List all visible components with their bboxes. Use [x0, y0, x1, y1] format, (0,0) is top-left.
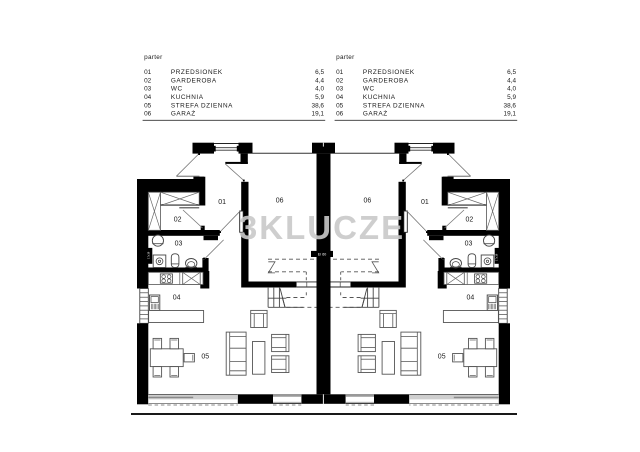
svg-text:38,6: 38,6: [312, 102, 325, 109]
svg-text:03: 03: [336, 86, 344, 93]
svg-text:19,1: 19,1: [504, 111, 517, 118]
svg-text:WC: WC: [171, 86, 183, 93]
svg-text:01: 01: [218, 199, 226, 206]
svg-text:KUCHNIA: KUCHNIA: [171, 94, 204, 101]
svg-text:4,4: 4,4: [315, 77, 324, 84]
svg-text:GARAŻ: GARAŻ: [363, 109, 388, 118]
svg-text:03: 03: [144, 86, 152, 93]
svg-text:02: 02: [144, 77, 152, 84]
svg-text:17x19: 17x19: [147, 251, 151, 259]
svg-text:WC: WC: [363, 86, 375, 93]
svg-text:02: 02: [466, 217, 474, 224]
svg-text:04: 04: [467, 295, 475, 302]
svg-text:6,5: 6,5: [507, 69, 516, 76]
svg-text:4,4: 4,4: [507, 77, 516, 84]
svg-text:PRZEDSIONEK: PRZEDSIONEK: [363, 69, 415, 76]
svg-text:STREFA DZIENNA: STREFA DZIENNA: [363, 102, 425, 109]
svg-text:5,9: 5,9: [315, 94, 324, 101]
svg-text:06: 06: [336, 111, 344, 118]
svg-text:04: 04: [144, 94, 152, 101]
svg-text:01: 01: [336, 69, 344, 76]
svg-text:GARAŻ: GARAŻ: [171, 109, 196, 118]
svg-text:03: 03: [175, 241, 183, 248]
svg-text:17x19: 17x19: [494, 253, 498, 261]
svg-text:parter: parter: [144, 54, 163, 61]
svg-text:06: 06: [144, 111, 152, 118]
svg-text:parter: parter: [336, 54, 355, 61]
svg-text:02: 02: [336, 77, 344, 84]
svg-text:GARDEROBA: GARDEROBA: [363, 77, 409, 84]
svg-text:4,0: 4,0: [507, 86, 516, 93]
svg-text:06: 06: [364, 197, 372, 204]
svg-text:03: 03: [465, 241, 473, 248]
svg-text:02: 02: [174, 217, 182, 224]
svg-text:01: 01: [144, 69, 152, 76]
svg-text:05: 05: [201, 354, 209, 361]
svg-text:38,6: 38,6: [504, 102, 517, 109]
svg-text:PRZEDSIONEK: PRZEDSIONEK: [171, 69, 223, 76]
svg-text:01: 01: [421, 199, 429, 206]
svg-text:6,5: 6,5: [315, 69, 324, 76]
svg-text:5,9: 5,9: [507, 94, 516, 101]
svg-text:3KLUCZE: 3KLUCZE: [239, 209, 405, 246]
svg-text:GARDEROBA: GARDEROBA: [171, 77, 217, 84]
svg-text:19,1: 19,1: [312, 111, 325, 118]
svg-text:05: 05: [438, 354, 446, 361]
svg-text:05: 05: [336, 102, 344, 109]
svg-text:04: 04: [173, 295, 181, 302]
svg-text:STREFA DZIENNA: STREFA DZIENNA: [171, 102, 233, 109]
svg-text:04: 04: [336, 94, 344, 101]
svg-text:05: 05: [144, 102, 152, 109]
svg-text:06: 06: [276, 197, 284, 204]
svg-text:EI 60: EI 60: [318, 253, 326, 257]
svg-text:4,0: 4,0: [315, 86, 324, 93]
svg-text:KUCHNIA: KUCHNIA: [363, 94, 396, 101]
